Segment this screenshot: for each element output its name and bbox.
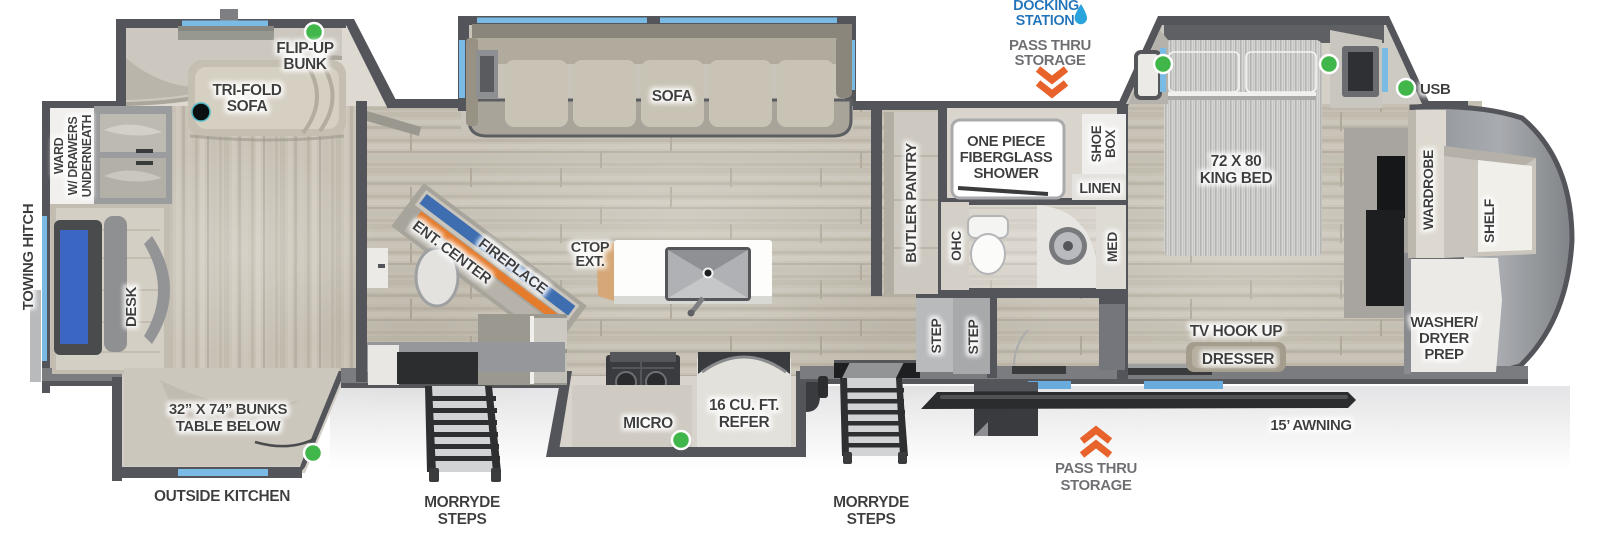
svg-text:MORRYDE: MORRYDE xyxy=(424,494,500,511)
svg-text:STORAGE: STORAGE xyxy=(1060,477,1131,494)
svg-text:PREP: PREP xyxy=(1424,346,1464,363)
svg-text:16 CU. FT.: 16 CU. FT. xyxy=(709,397,779,414)
svg-text:STEPS: STEPS xyxy=(438,511,487,528)
svg-text:FLIP-UP: FLIP-UP xyxy=(276,40,334,57)
svg-text:SOFA: SOFA xyxy=(652,88,693,105)
svg-text:STEP: STEP xyxy=(965,319,981,354)
svg-text:DOCKING: DOCKING xyxy=(1013,0,1079,14)
svg-text:LINEN: LINEN xyxy=(1079,181,1121,197)
svg-text:72 X 80: 72 X 80 xyxy=(1211,153,1262,170)
svg-text:PASS THRU: PASS THRU xyxy=(1055,460,1137,477)
svg-text:32” X 74” BUNKS: 32” X 74” BUNKS xyxy=(169,401,288,418)
svg-text:STEP: STEP xyxy=(928,318,944,353)
svg-text:STORAGE: STORAGE xyxy=(1014,52,1085,69)
svg-text:BUNK: BUNK xyxy=(283,56,327,73)
svg-text:SHELF: SHELF xyxy=(1481,198,1497,243)
svg-text:REFER: REFER xyxy=(719,414,770,431)
svg-text:DRYER: DRYER xyxy=(1419,330,1470,347)
svg-text:UNDERNEATH: UNDERNEATH xyxy=(80,114,94,197)
svg-text:OHC: OHC xyxy=(948,231,964,261)
svg-text:MED: MED xyxy=(1104,232,1120,262)
svg-text:WASHER/: WASHER/ xyxy=(1410,314,1478,331)
svg-text:KING BED: KING BED xyxy=(1200,170,1273,187)
svg-text:ONE PIECE: ONE PIECE xyxy=(967,133,1045,150)
svg-text:WARD: WARD xyxy=(52,137,66,174)
svg-text:TOWING HITCH: TOWING HITCH xyxy=(20,204,37,311)
svg-text:EXT.: EXT. xyxy=(575,254,604,270)
svg-text:SHOWER: SHOWER xyxy=(973,165,1039,182)
svg-text:BOX: BOX xyxy=(1103,130,1118,158)
svg-text:FIBERGLASS: FIBERGLASS xyxy=(960,149,1053,166)
svg-text:STEPS: STEPS xyxy=(847,511,896,528)
svg-text:MORRYDE: MORRYDE xyxy=(833,494,909,511)
svg-text:W/ DRAWERS: W/ DRAWERS xyxy=(66,117,80,196)
svg-text:TRI-FOLD: TRI-FOLD xyxy=(212,82,281,99)
svg-text:SHOE: SHOE xyxy=(1089,125,1104,162)
svg-text:MICRO: MICRO xyxy=(623,415,673,432)
svg-text:15’ AWNING: 15’ AWNING xyxy=(1270,417,1351,434)
svg-text:TV HOOK UP: TV HOOK UP xyxy=(1190,323,1283,340)
svg-text:DRESSER: DRESSER xyxy=(1202,351,1274,368)
svg-text:SOFA: SOFA xyxy=(227,98,268,115)
svg-text:OUTSIDE KITCHEN: OUTSIDE KITCHEN xyxy=(154,488,290,505)
svg-text:BUTLER PANTRY: BUTLER PANTRY xyxy=(903,143,920,263)
svg-text:STATION: STATION xyxy=(1016,13,1075,29)
svg-text:WARDROBE: WARDROBE xyxy=(1420,150,1436,230)
svg-text:USB: USB xyxy=(1420,81,1451,98)
svg-text:TABLE BELOW: TABLE BELOW xyxy=(176,418,282,435)
svg-text:DESK: DESK xyxy=(123,286,140,327)
